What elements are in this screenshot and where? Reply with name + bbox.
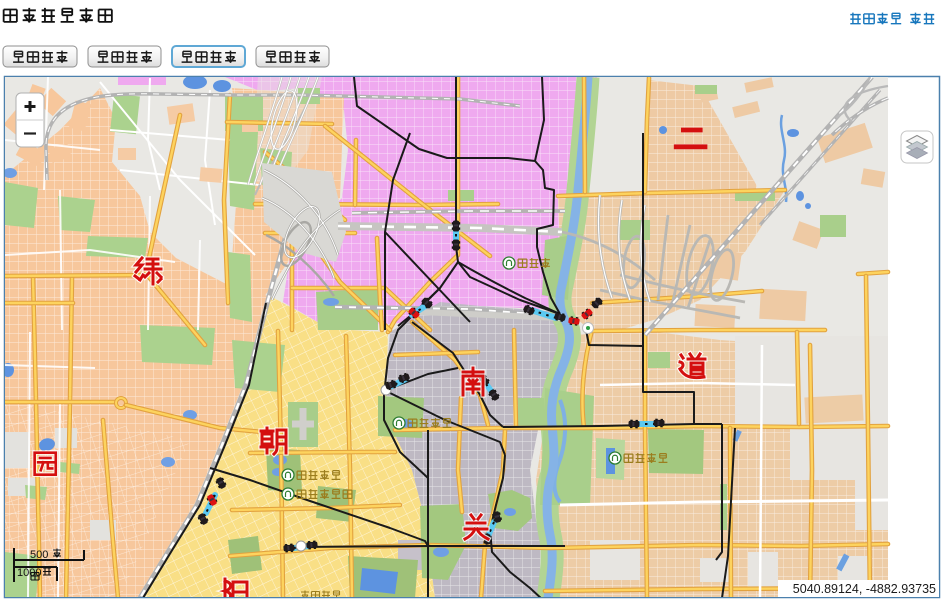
svg-text:5040.89124, -4882.93735: 5040.89124, -4882.93735 [793,582,936,596]
svg-text:500: 500 [30,549,48,561]
